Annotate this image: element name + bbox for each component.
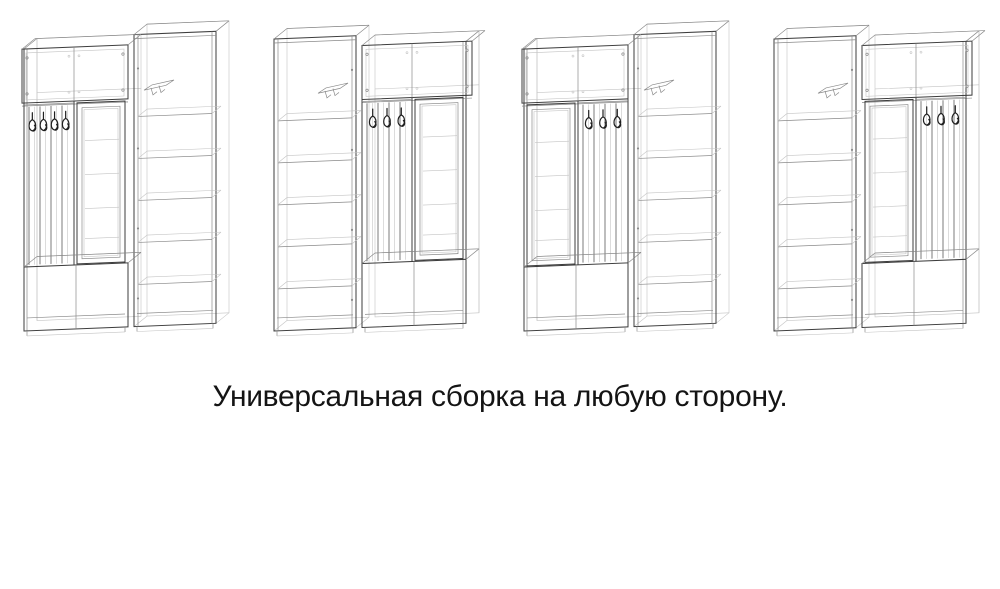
wireframe-drawing xyxy=(500,4,750,356)
wireframe-drawing xyxy=(250,4,500,356)
furniture-variant-2 xyxy=(250,4,500,356)
caption-text: Универсальная сборка на любую сторону. xyxy=(0,380,1000,414)
furniture-variant-4 xyxy=(750,4,1000,356)
furniture-variant-3 xyxy=(500,4,750,356)
wireframe-drawing xyxy=(750,4,1000,356)
variants-row xyxy=(0,4,1000,356)
product-image: Универсальная сборка на любую сторону. xyxy=(0,0,1000,589)
furniture-variant-1 xyxy=(0,4,250,356)
wireframe-drawing xyxy=(0,4,250,356)
